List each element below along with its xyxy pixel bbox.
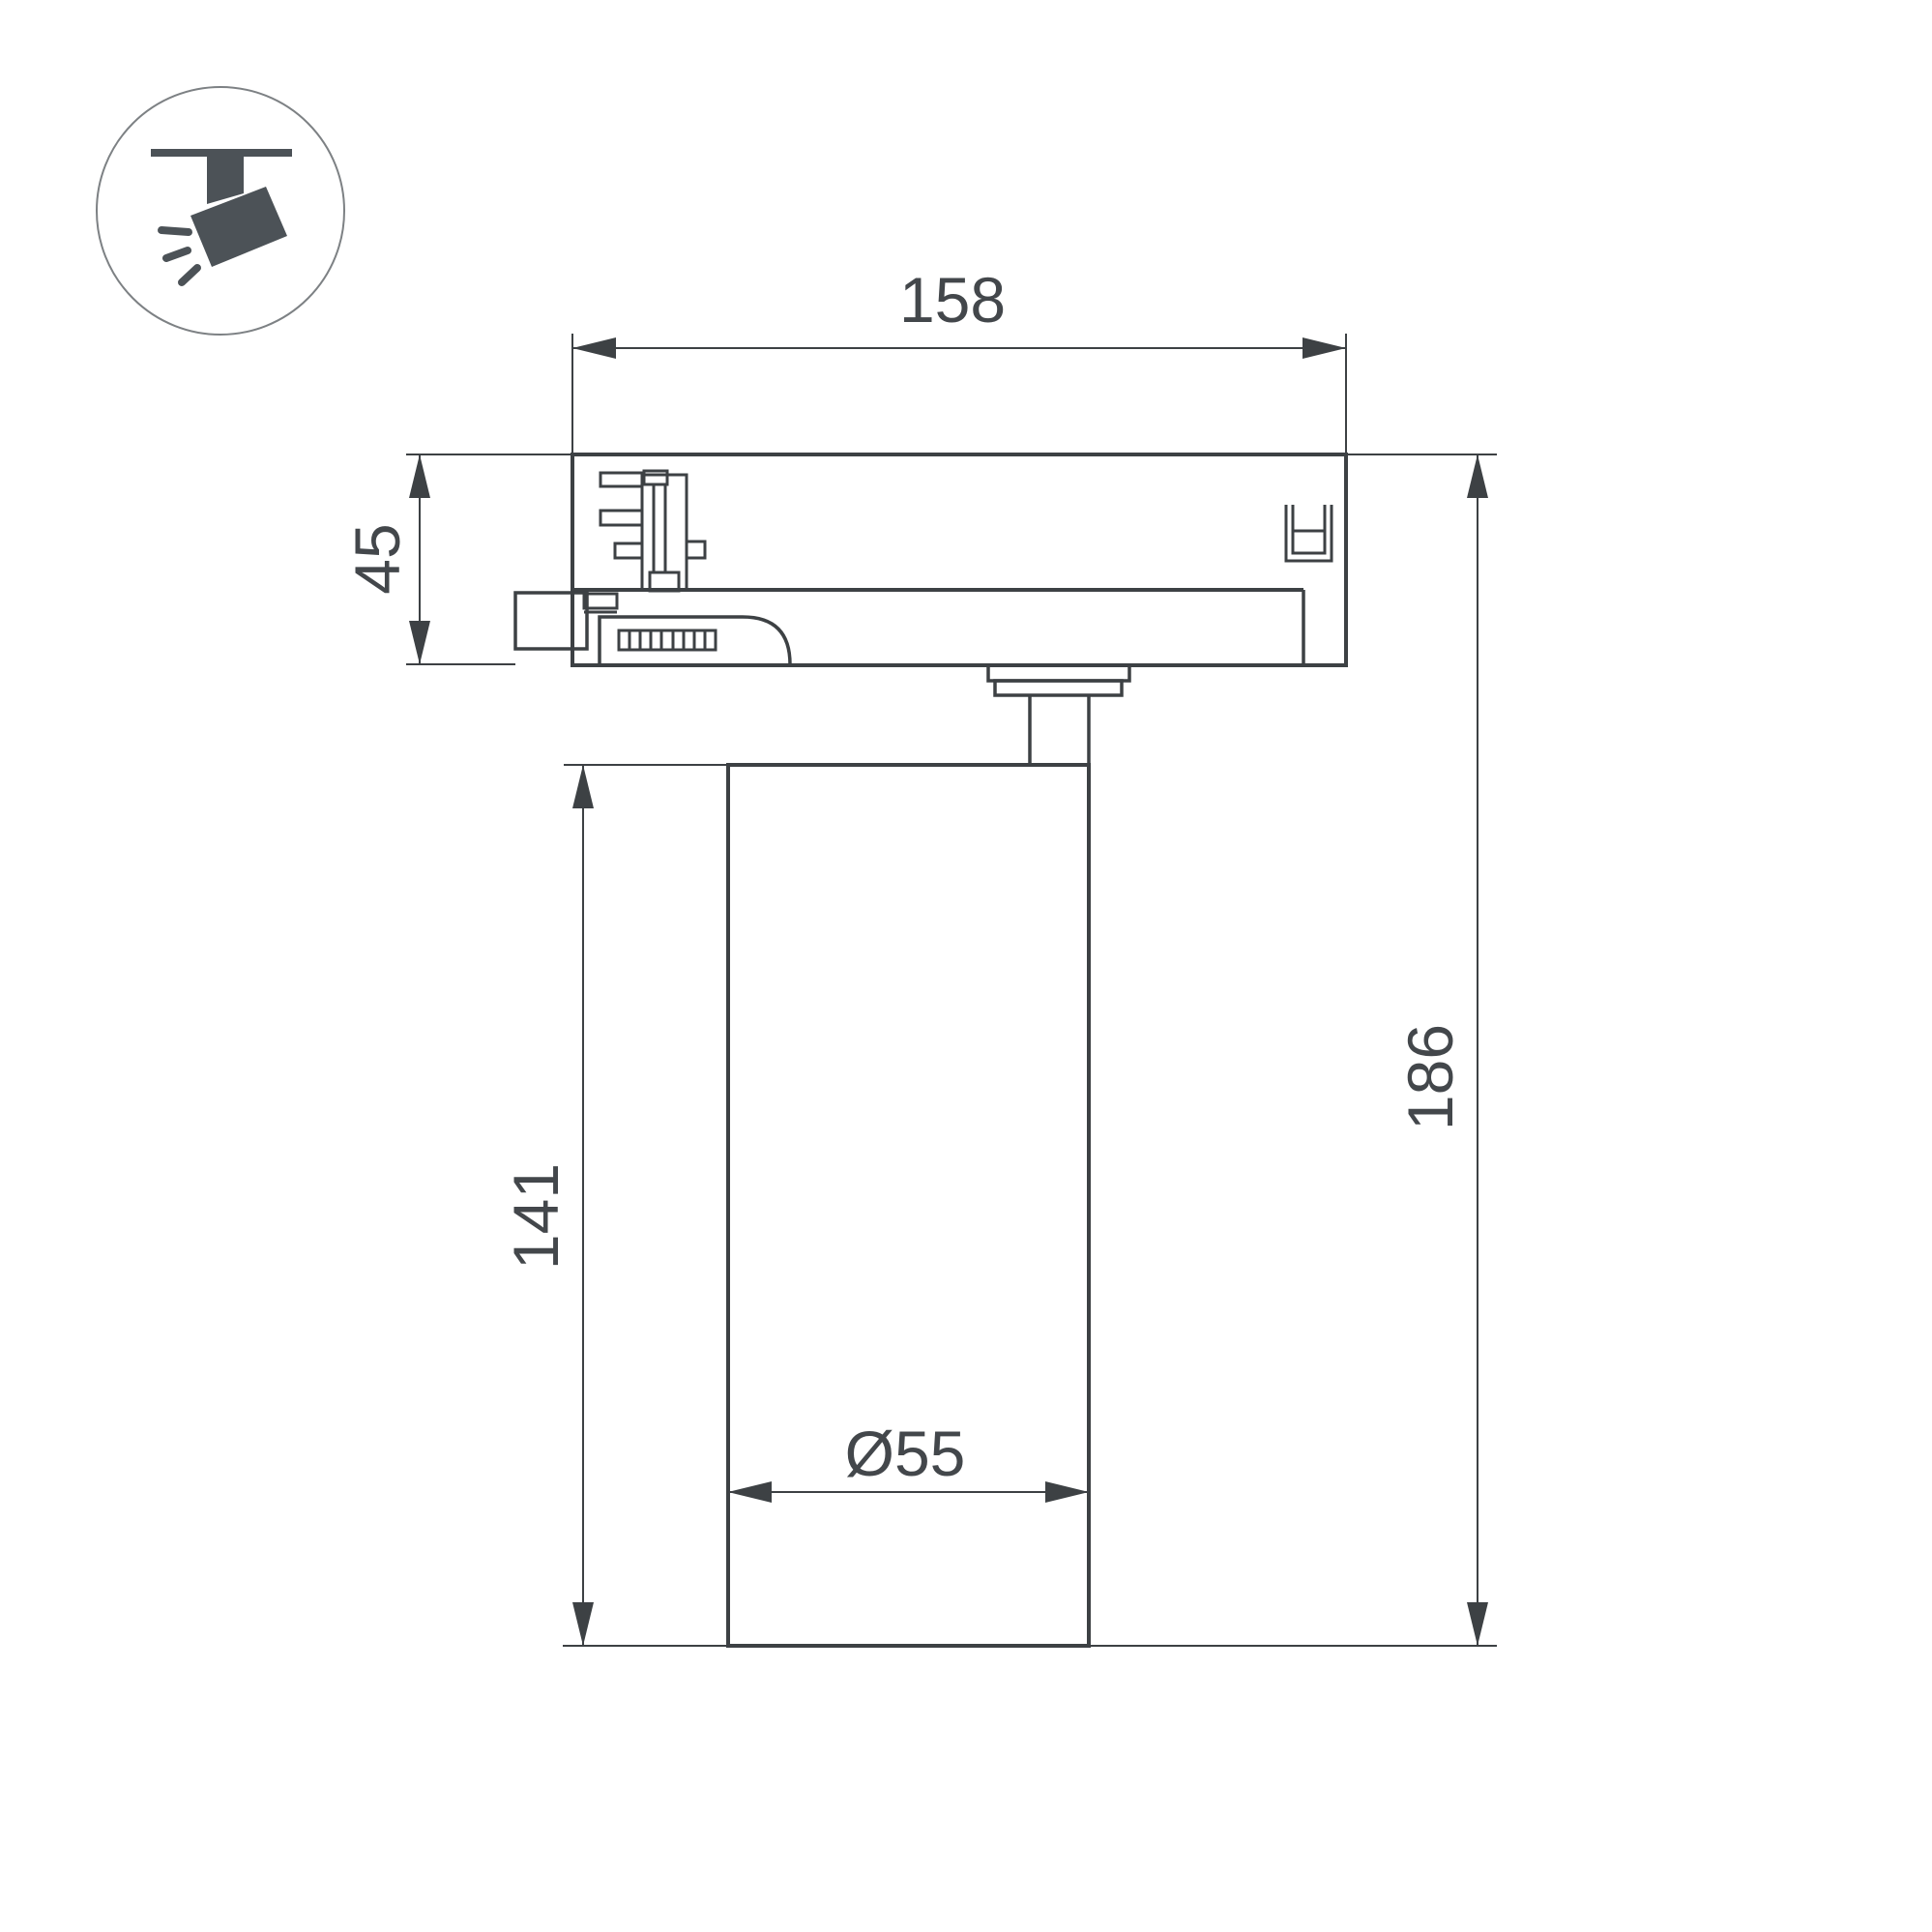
arrow-right-icon bbox=[1303, 337, 1346, 359]
lock-latch bbox=[515, 593, 617, 649]
dim-body-height bbox=[564, 765, 728, 1646]
arrow-left-icon bbox=[728, 1481, 772, 1503]
latch-lever bbox=[515, 593, 587, 649]
arrow-down-icon bbox=[1467, 1602, 1488, 1646]
arrow-left-icon bbox=[572, 337, 616, 359]
dim-body-height-label: 141 bbox=[500, 1163, 571, 1270]
end-clip-inner bbox=[1293, 505, 1325, 553]
dim-track-adapter-width bbox=[572, 334, 1346, 454]
contact-column bbox=[654, 484, 665, 572]
latch-slider bbox=[584, 594, 617, 608]
mount-stem-assembly bbox=[988, 665, 1129, 765]
end-clip bbox=[1286, 505, 1332, 561]
contact-cap bbox=[644, 471, 667, 484]
mount-plate-upper bbox=[988, 665, 1129, 681]
arrow-right-icon bbox=[1045, 1481, 1089, 1503]
contact-prong-bottom bbox=[615, 543, 642, 558]
track-spotlight-icon bbox=[97, 87, 344, 335]
grip-ribs-frame bbox=[619, 630, 716, 650]
dim-adapter-height-extension-lines bbox=[406, 454, 572, 664]
contact-prong-middle bbox=[600, 511, 642, 525]
dim-track-adapter-height bbox=[406, 454, 572, 664]
contact-prong-top bbox=[600, 473, 642, 486]
arrow-up-icon bbox=[1467, 454, 1488, 498]
dimension-labels: 158 45 141 186 Ø55 bbox=[341, 264, 1466, 1489]
dim-diameter-label: Ø55 bbox=[845, 1418, 966, 1489]
arrow-up-icon bbox=[572, 765, 594, 808]
dim-total-height-label: 186 bbox=[1394, 1024, 1466, 1130]
drawing-canvas: 158 45 141 186 Ø55 bbox=[0, 0, 1932, 1932]
dim-total-height bbox=[563, 454, 1497, 1646]
contact-prong-right bbox=[687, 542, 705, 558]
contact-block bbox=[600, 471, 705, 591]
track-adapter bbox=[515, 454, 1346, 665]
track-adapter-outline bbox=[572, 454, 1346, 665]
dimension-drawing-svg: 158 45 141 186 Ø55 bbox=[0, 0, 1932, 1932]
dim-width-label: 158 bbox=[899, 264, 1006, 336]
arrow-up-icon bbox=[409, 454, 430, 498]
dim-width-extension-lines bbox=[572, 334, 1346, 454]
adapter-lower-body bbox=[600, 617, 790, 664]
icon-ray-1 bbox=[161, 230, 189, 232]
grip-ribs bbox=[629, 630, 705, 650]
luminaire-body bbox=[728, 765, 1089, 1646]
mount-stem bbox=[1030, 695, 1089, 765]
arrow-down-icon bbox=[409, 621, 430, 664]
dim-adapter-height-label: 45 bbox=[341, 523, 413, 594]
mount-plate-lower bbox=[995, 681, 1122, 695]
arrow-down-icon bbox=[572, 1602, 594, 1646]
